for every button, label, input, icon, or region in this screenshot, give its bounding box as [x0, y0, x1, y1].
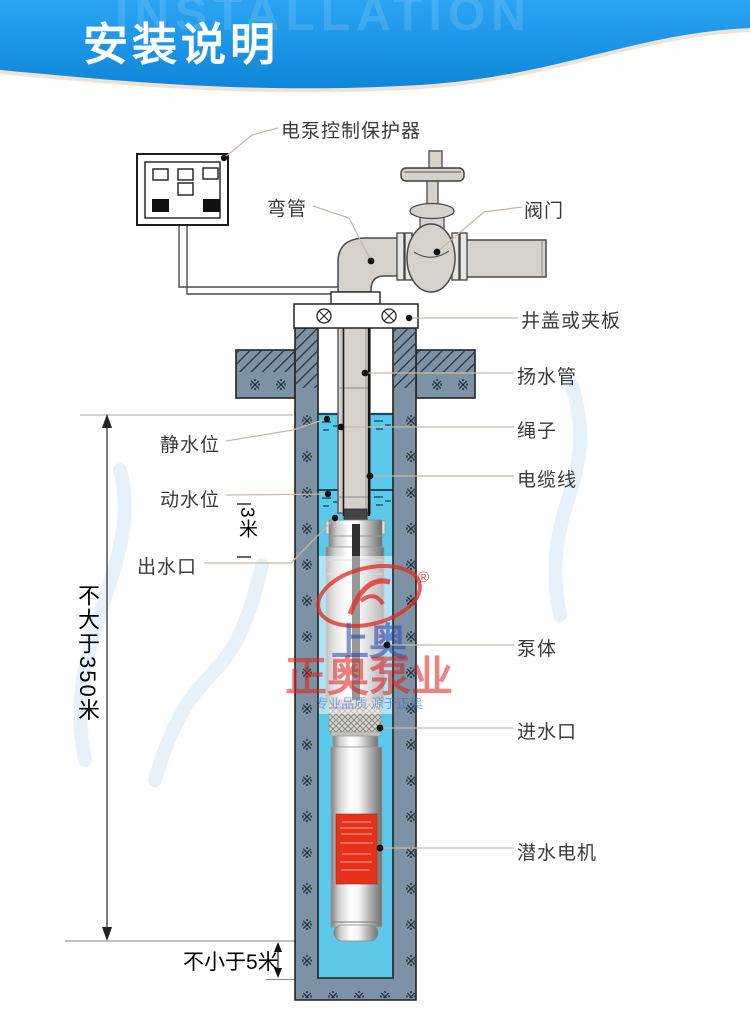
label-well-cover: 井盖或夹板: [521, 306, 621, 333]
outlet-pipe: [466, 240, 546, 277]
power-wire: [179, 225, 341, 294]
page: ※ INSTALLATION: [0, 0, 750, 1028]
control-box: [137, 154, 228, 225]
valve-handwheel: [401, 168, 464, 181]
valve-body: [407, 224, 455, 292]
valve-bonnet: [410, 204, 454, 219]
well-cover-plate: [294, 292, 418, 328]
pipe-flange: [331, 292, 380, 304]
label-rope: 绳子: [517, 416, 557, 443]
label-riser-pipe: 扬水管: [517, 362, 577, 389]
label-outlet: 出水口: [137, 552, 197, 579]
label-cable: 电缆线: [517, 465, 577, 492]
label-static-level: 静水位: [160, 430, 220, 457]
label-dynamic-level: 动水位: [160, 485, 220, 512]
label-inlet: 进水口: [517, 717, 577, 744]
page-title: 安装说明: [83, 8, 279, 73]
dimension-min-submergence: 3米: [233, 507, 260, 539]
label-elbow: 弯管: [267, 194, 307, 221]
bolt-icon: [382, 309, 396, 323]
motor-label: [336, 814, 377, 884]
dimension-bottom-clearance: 不小于5米: [183, 946, 279, 976]
bolt-icon: [317, 309, 331, 323]
brand-company: 正奥泵业: [285, 653, 453, 700]
label-pump-body: 泵体: [517, 634, 557, 661]
motor-bottom-cap: [334, 925, 378, 941]
registered-mark: ®: [418, 569, 429, 586]
installation-diagram: ※ INSTALLATION: [0, 0, 750, 1028]
dimension-max-depth: 不大于350米: [71, 584, 103, 723]
brand-tagline: 专业品质 源于正奥: [315, 696, 423, 711]
elbow-pipe: [338, 238, 399, 292]
label-motor: 潜水电机: [517, 838, 597, 865]
label-controller: 电泵控制保护器: [281, 116, 421, 143]
label-valve: 阀门: [524, 196, 564, 223]
